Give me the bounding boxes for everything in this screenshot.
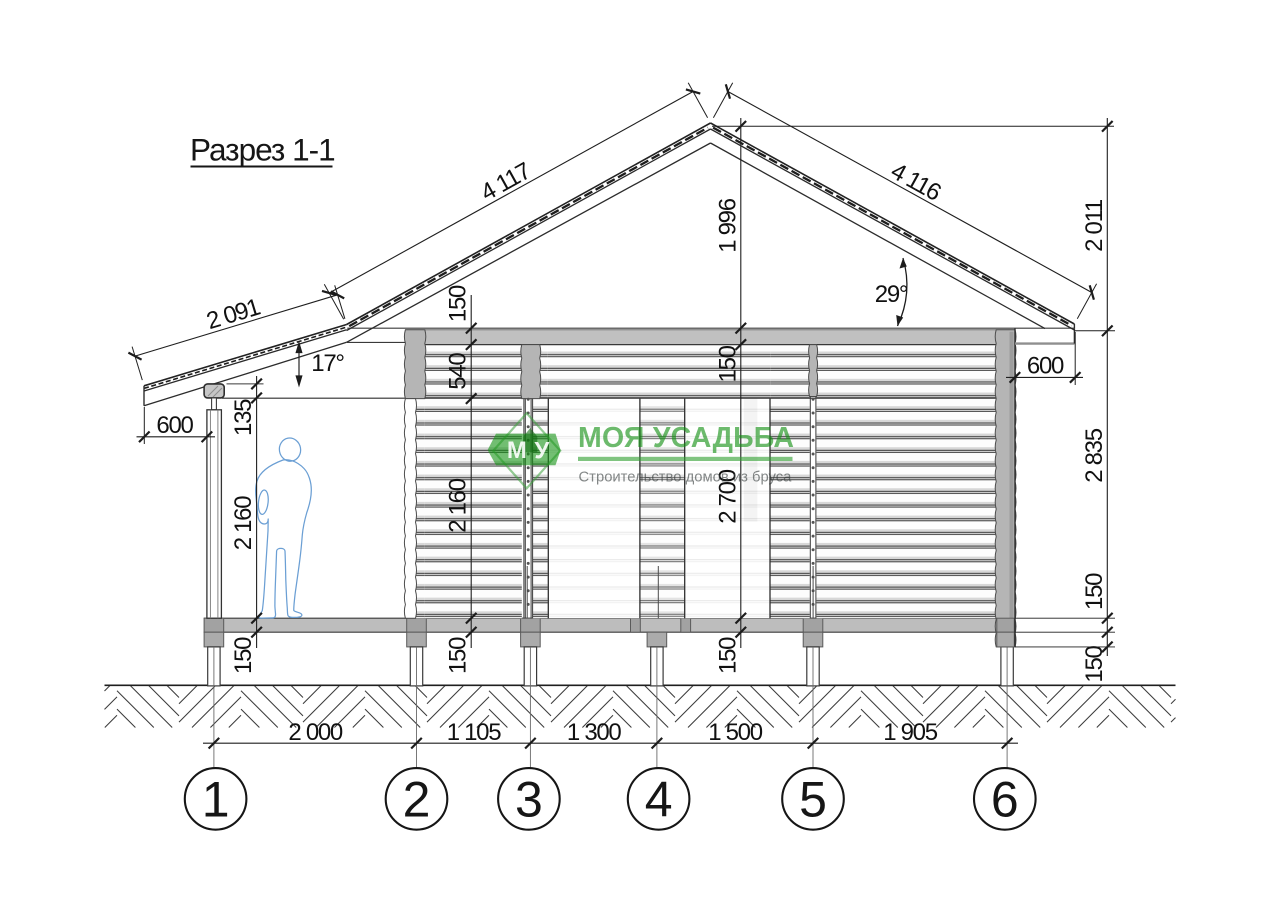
svg-text:2 011: 2 011 — [1081, 199, 1108, 252]
svg-text:150: 150 — [714, 637, 741, 674]
svg-text:29°: 29° — [875, 281, 908, 308]
svg-text:540: 540 — [445, 353, 472, 390]
svg-text:150: 150 — [1081, 645, 1108, 682]
svg-text:Строительство домов из бруса: Строительство домов из бруса — [579, 470, 793, 486]
svg-text:М: М — [507, 437, 526, 464]
svg-text:Разрез 1-1: Разрез 1-1 — [190, 132, 335, 168]
svg-text:2: 2 — [403, 771, 431, 827]
svg-text:150: 150 — [714, 345, 741, 382]
svg-text:МОЯ УСАДЬБА: МОЯ УСАДЬБА — [578, 422, 794, 454]
svg-text:2 160: 2 160 — [230, 496, 257, 551]
svg-text:4: 4 — [645, 771, 673, 827]
svg-text:5: 5 — [799, 771, 827, 827]
svg-text:1 905: 1 905 — [883, 719, 938, 746]
svg-text:6: 6 — [991, 771, 1019, 827]
svg-text:1 300: 1 300 — [567, 719, 622, 746]
svg-text:150: 150 — [230, 637, 257, 674]
svg-text:1 996: 1 996 — [714, 198, 741, 253]
svg-text:2 000: 2 000 — [288, 719, 343, 746]
svg-text:2 835: 2 835 — [1081, 428, 1108, 483]
svg-text:3: 3 — [515, 771, 543, 827]
svg-text:135: 135 — [230, 399, 257, 436]
svg-text:600: 600 — [1027, 353, 1064, 380]
svg-text:150: 150 — [1081, 573, 1108, 610]
svg-text:17°: 17° — [311, 350, 344, 377]
svg-text:2 160: 2 160 — [445, 478, 472, 533]
svg-text:150: 150 — [445, 637, 472, 674]
svg-text:150: 150 — [445, 285, 472, 322]
svg-text:600: 600 — [156, 412, 193, 439]
svg-text:У: У — [534, 438, 550, 465]
svg-text:1 105: 1 105 — [447, 719, 502, 746]
svg-text:1 500: 1 500 — [708, 719, 763, 746]
svg-text:1: 1 — [202, 771, 230, 827]
